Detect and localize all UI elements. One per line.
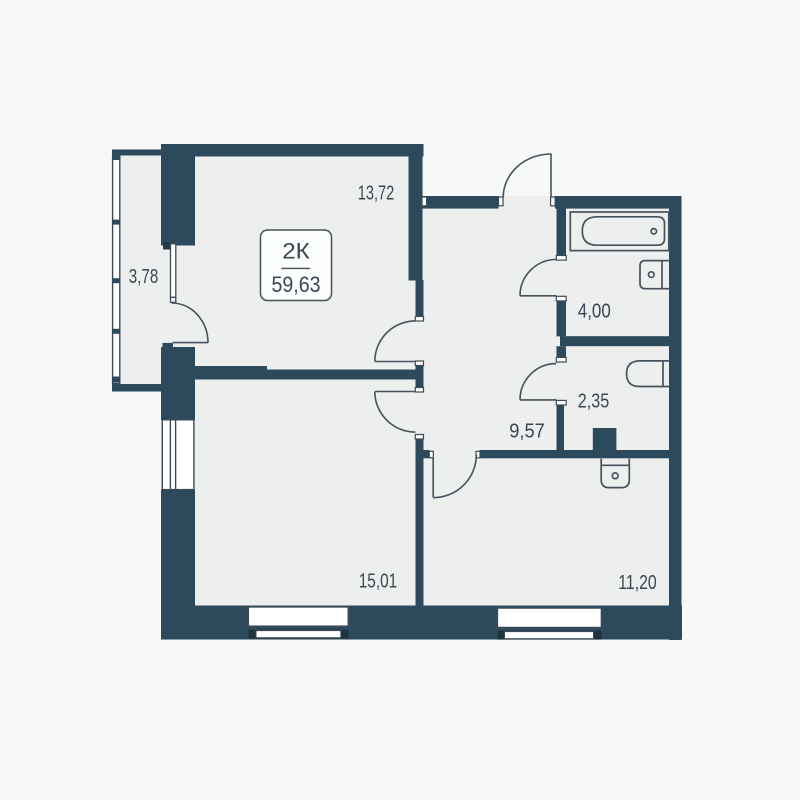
svg-text:9,57: 9,57: [509, 421, 545, 443]
svg-text:2,35: 2,35: [578, 391, 610, 413]
svg-text:13,72: 13,72: [358, 183, 395, 205]
svg-text:2К: 2К: [282, 239, 310, 264]
svg-text:11,20: 11,20: [618, 572, 657, 594]
svg-text:59,63: 59,63: [272, 272, 321, 297]
svg-text:15,01: 15,01: [359, 571, 398, 593]
svg-text:3,78: 3,78: [129, 266, 159, 288]
svg-text:4,00: 4,00: [578, 301, 611, 323]
